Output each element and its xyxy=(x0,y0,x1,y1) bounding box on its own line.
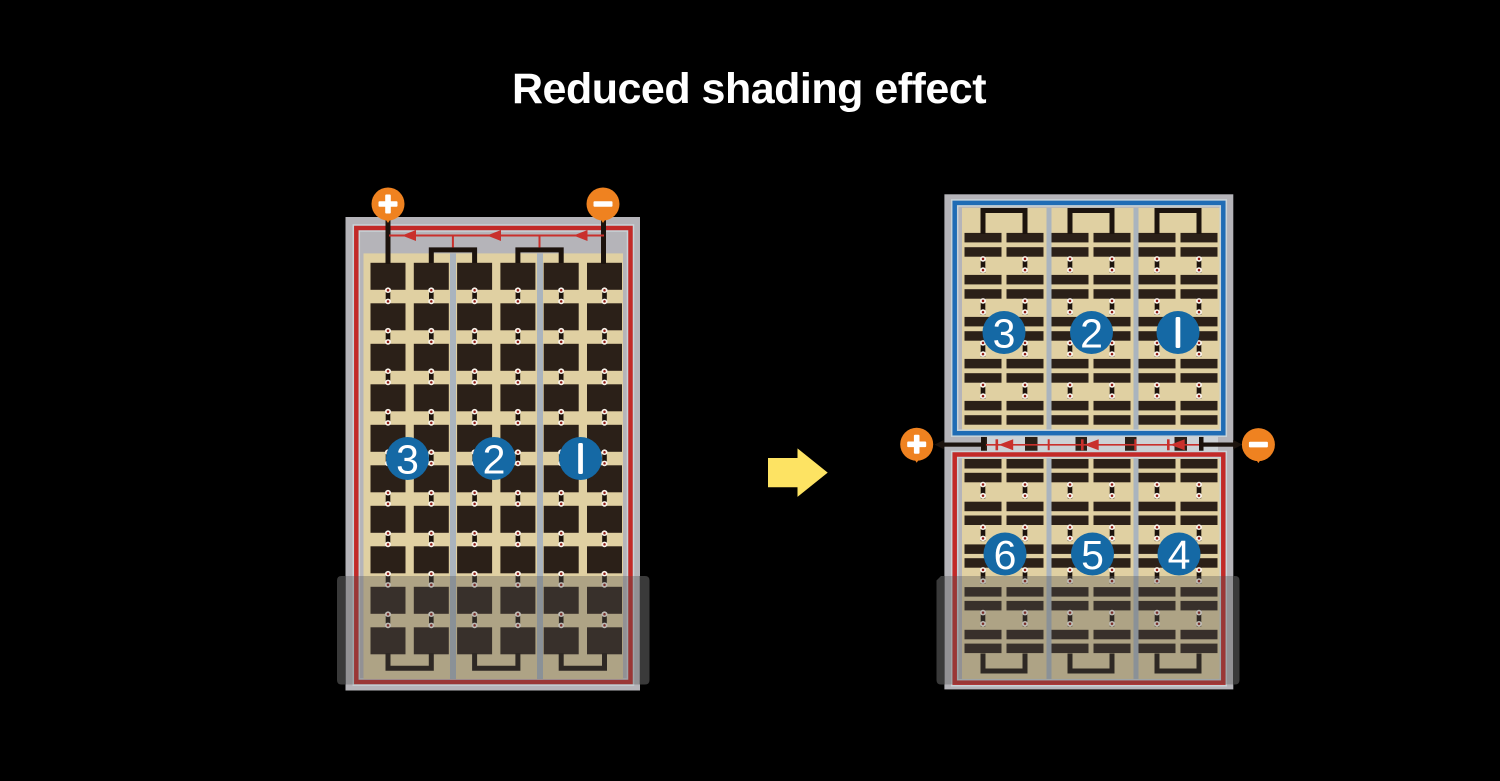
svg-text:4: 4 xyxy=(1168,532,1191,578)
svg-text:Reduced shading effect: Reduced shading effect xyxy=(512,65,986,113)
svg-text:5: 5 xyxy=(1081,532,1104,578)
svg-text:2: 2 xyxy=(1080,311,1103,357)
svg-text:6: 6 xyxy=(994,532,1017,578)
svg-text:2: 2 xyxy=(483,437,506,483)
svg-text:3: 3 xyxy=(396,437,419,483)
svg-text:3: 3 xyxy=(993,311,1016,357)
